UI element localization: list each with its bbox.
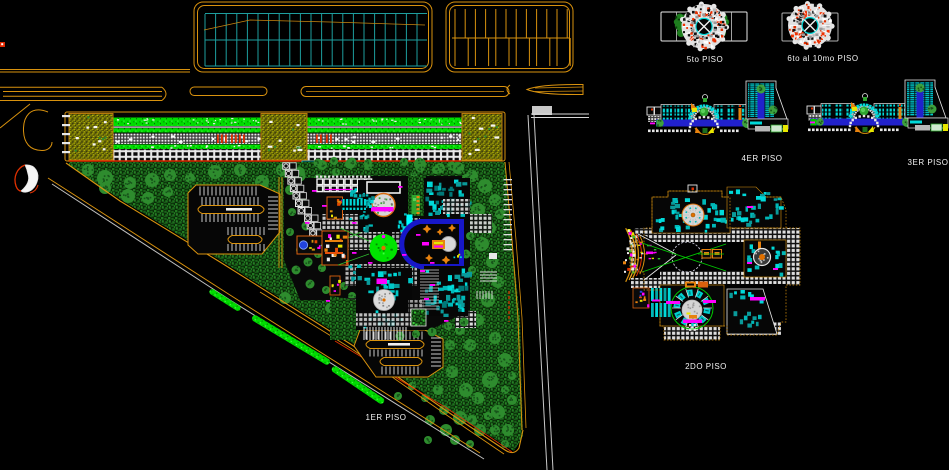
svg-text:3ER PISO: 3ER PISO xyxy=(908,158,949,167)
svg-text:2DO PISO: 2DO PISO xyxy=(685,362,727,371)
svg-text:6to al 10mo PISO: 6to al 10mo PISO xyxy=(787,54,858,63)
svg-text:4ER PISO: 4ER PISO xyxy=(742,154,783,163)
svg-text:1ER PISO: 1ER PISO xyxy=(366,413,407,422)
svg-text:5to PISO: 5to PISO xyxy=(687,55,723,64)
